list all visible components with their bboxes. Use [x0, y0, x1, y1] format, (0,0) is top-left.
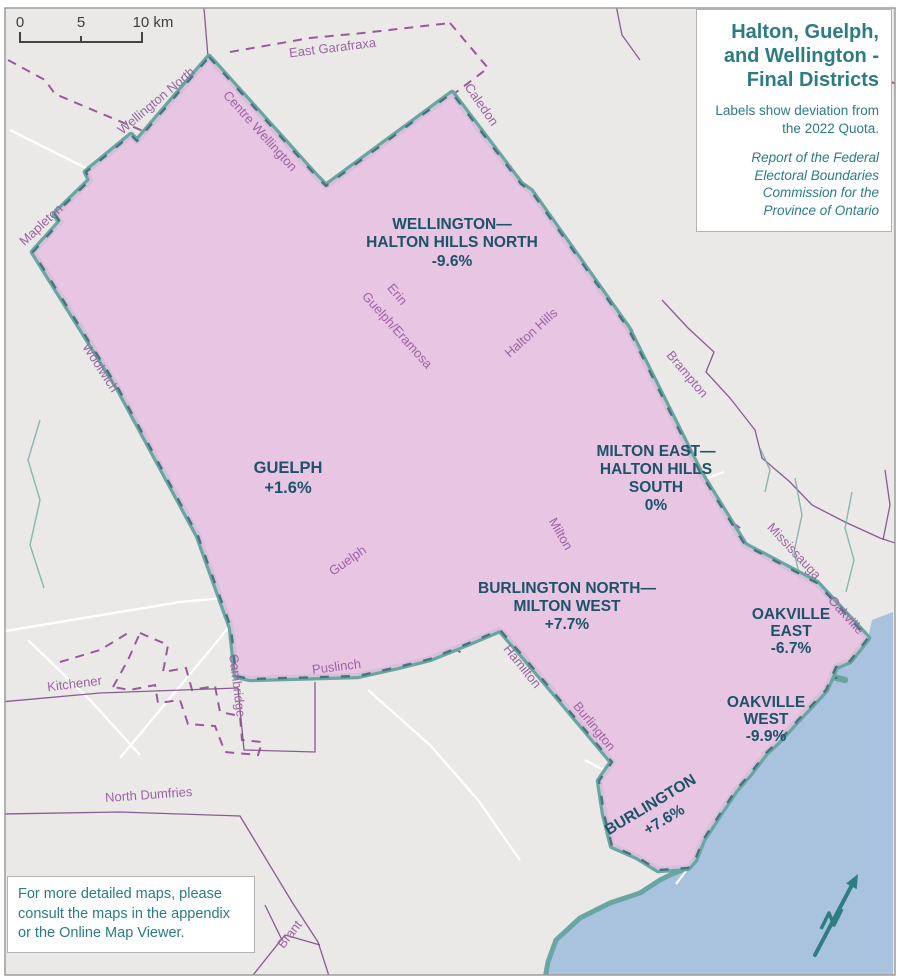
svg-text:OAKVILLE: OAKVILLE — [727, 694, 805, 711]
map-screenshot: East Garafraxa Wellington North Centre W… — [0, 0, 900, 979]
svg-text:HALTON HILLS NORTH: HALTON HILLS NORTH — [366, 234, 538, 251]
scale-tick-5: 5 — [77, 14, 85, 31]
map-subtitle: Labels show deviation from the 2022 Quot… — [709, 102, 879, 137]
svg-text:+1.6%: +1.6% — [264, 479, 312, 497]
svg-text:OAKVILLE: OAKVILLE — [752, 606, 830, 623]
svg-text:-9.9%: -9.9% — [746, 728, 787, 745]
svg-text:MILTON WEST: MILTON WEST — [513, 598, 621, 615]
svg-text:-9.6%: -9.6% — [432, 253, 473, 270]
svg-text:WEST: WEST — [744, 711, 789, 728]
map-attribution: Report of the Federal Electoral Boundari… — [709, 149, 879, 219]
svg-text:GUELPH: GUELPH — [254, 459, 323, 477]
svg-text:0%: 0% — [645, 497, 668, 514]
title-box: Halton, Guelph, and Wellington - Final D… — [696, 9, 892, 232]
svg-text:HALTON HILLS: HALTON HILLS — [600, 461, 712, 478]
svg-text:SOUTH: SOUTH — [629, 479, 683, 496]
svg-text:EAST: EAST — [770, 623, 812, 640]
note-box: For more detailed maps, please consult t… — [7, 876, 255, 953]
scale-tick-10km: 10 km — [133, 14, 174, 31]
svg-text:-6.7%: -6.7% — [771, 640, 812, 657]
map-title: Halton, Guelph, and Wellington - Final D… — [709, 20, 879, 92]
note-text: For more detailed maps, please consult t… — [18, 886, 230, 941]
svg-text:+7.7%: +7.7% — [545, 616, 590, 633]
svg-text:MILTON EAST—: MILTON EAST— — [596, 443, 716, 460]
svg-text:BURLINGTON NORTH—: BURLINGTON NORTH— — [478, 580, 656, 597]
scale-tick-0: 0 — [16, 14, 24, 31]
svg-text:WELLINGTON—: WELLINGTON— — [392, 216, 512, 233]
